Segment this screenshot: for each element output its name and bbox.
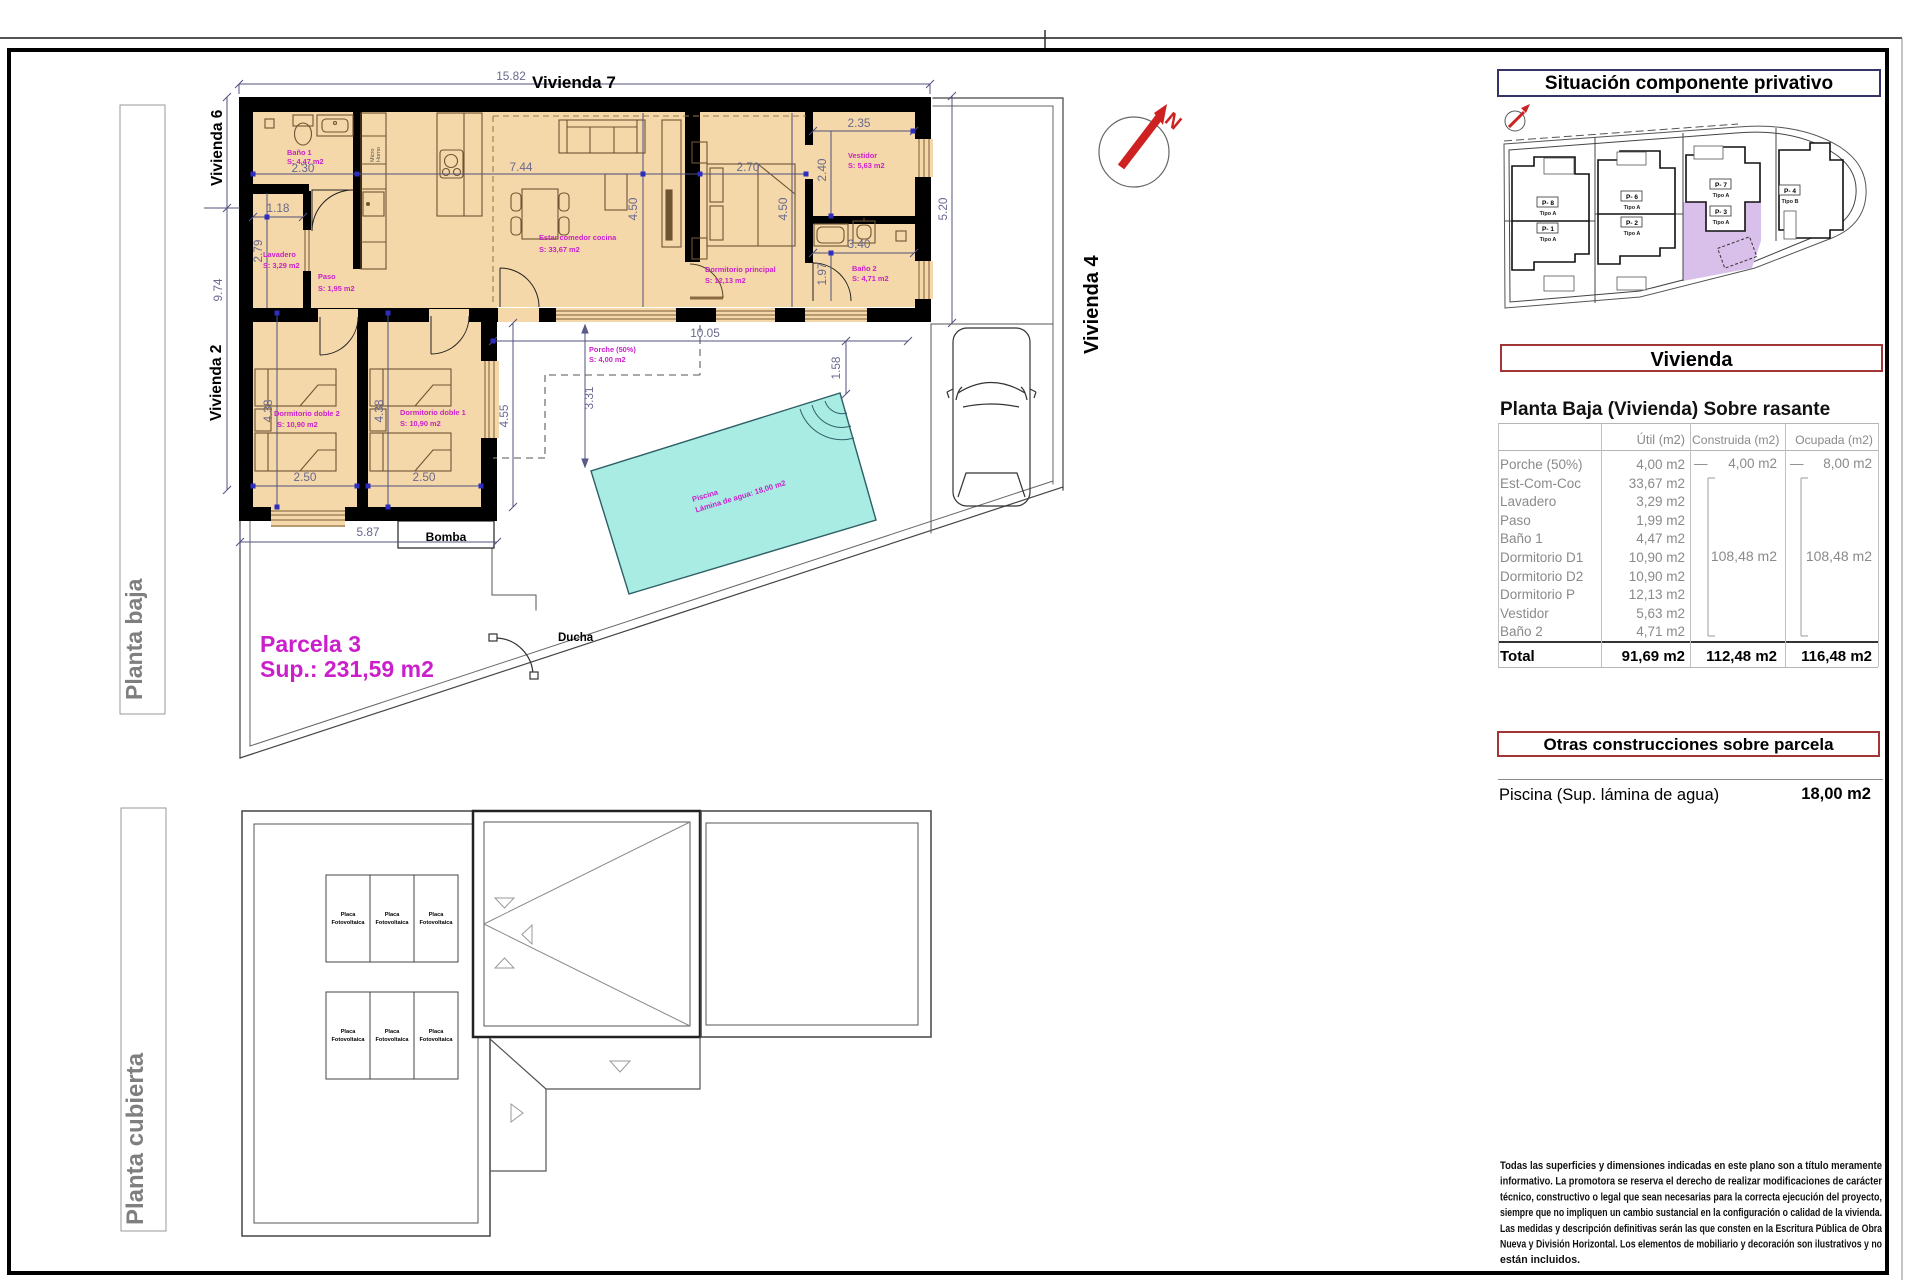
svg-text:Fotovoltaica: Fotovoltaica [332,920,366,926]
svg-text:3.31: 3.31 [582,387,596,410]
svg-text:siempre que no impliquen un ca: siempre que no impliquen un cambio susta… [1500,1207,1882,1219]
svg-text:Tipo B: Tipo B [1781,199,1798,205]
svg-text:1.58: 1.58 [829,356,843,379]
svg-text:Fotovoltaica: Fotovoltaica [376,1037,410,1043]
svg-text:Vivienda 6: Vivienda 6 [209,109,226,186]
svg-text:Planta cubierta: Planta cubierta [122,1052,149,1225]
svg-text:P- 4: P- 4 [1784,188,1796,195]
svg-text:Las medidas y descripción defi: Las medidas y descripción definitivas se… [1500,1223,1882,1235]
svg-text:Baño 2: Baño 2 [852,264,877,273]
svg-text:4.38: 4.38 [372,399,386,422]
svg-text:P- 6: P- 6 [1626,194,1638,201]
svg-text:10.05: 10.05 [690,326,720,340]
svg-text:Planta baja: Planta baja [121,578,147,700]
svg-text:Fotovoltaica: Fotovoltaica [332,1037,366,1043]
svg-text:informativo. La promotora se r: informativo. La promotora se reserva el … [1500,1176,1882,1188]
svg-text:Tipo A: Tipo A [1713,193,1730,199]
svg-text:Placa: Placa [385,1029,401,1035]
svg-text:Tipo A: Tipo A [1540,211,1557,217]
svg-text:S: 5,63 m2: S: 5,63 m2 [848,161,885,170]
svg-text:P- 8: P- 8 [1542,200,1554,207]
svg-text:2.40: 2.40 [815,158,829,181]
svg-text:Sup.: 231,59 m2: Sup.: 231,59 m2 [260,656,434,682]
svg-text:Placa: Placa [341,1029,357,1035]
svg-text:4.50: 4.50 [776,197,790,220]
svg-text:2.50: 2.50 [294,470,317,484]
svg-text:2.50: 2.50 [413,470,436,484]
svg-text:Tipo A: Tipo A [1713,220,1730,226]
svg-text:S: 3,29 m2: S: 3,29 m2 [263,261,300,270]
svg-text:Paso: Paso [318,272,336,281]
svg-text:Fotovoltaica: Fotovoltaica [420,920,454,926]
svg-text:Fotovoltaica: Fotovoltaica [376,920,410,926]
svg-text:Vivienda 7: Vivienda 7 [532,73,616,92]
svg-text:S: 4,00 m2: S: 4,00 m2 [589,355,626,364]
svg-text:Placa: Placa [385,912,401,918]
svg-text:Tipo A: Tipo A [1540,237,1557,243]
svg-text:Dormitorio doble 2: Dormitorio doble 2 [274,409,340,418]
svg-text:Vivienda 2: Vivienda 2 [208,345,225,421]
svg-text:Horno: Horno [376,147,382,162]
svg-text:P- 7: P- 7 [1715,182,1727,189]
svg-text:2.70: 2.70 [737,160,760,174]
svg-text:S: 1,95 m2: S: 1,95 m2 [318,284,355,293]
svg-text:5.87: 5.87 [357,525,380,539]
svg-text:4.38: 4.38 [261,399,275,422]
svg-text:S: 12,13 m2: S: 12,13 m2 [705,276,746,285]
svg-text:9.74: 9.74 [211,278,225,301]
svg-text:Porche (50%): Porche (50%) [589,345,636,354]
svg-text:Tipo A: Tipo A [1624,231,1641,237]
svg-text:están incluidos.: están incluidos. [1500,1254,1580,1266]
svg-text:3.40: 3.40 [848,237,871,251]
svg-text:4.50: 4.50 [626,197,640,220]
svg-text:Ducha: Ducha [558,632,594,644]
svg-text:Placa: Placa [429,1029,445,1035]
svg-text:1.18: 1.18 [267,201,290,215]
svg-text:S: 10,90 m2: S: 10,90 m2 [277,420,318,429]
svg-text:Lavadero: Lavadero [263,250,296,259]
svg-text:técnico, constructivo o legal: técnico, constructivo o legal que sean n… [1500,1191,1882,1203]
svg-text:Placa: Placa [341,912,357,918]
svg-text:P- 3: P- 3 [1715,209,1727,216]
svg-text:Vestidor: Vestidor [848,151,877,160]
svg-text:Todas las superficies y dimens: Todas las superficies y dimensiones indi… [1500,1160,1882,1172]
svg-text:Nueva y División Horizontal. L: Nueva y División Horizontal. Los element… [1500,1239,1882,1251]
svg-text:15.82: 15.82 [496,69,526,83]
svg-text:Dormitorio principal: Dormitorio principal [705,265,776,274]
svg-text:Fotovoltaica: Fotovoltaica [420,1037,454,1043]
svg-text:Dormitorio doble 1: Dormitorio doble 1 [400,408,466,417]
svg-text:S: 4,47 m2: S: 4,47 m2 [287,157,324,166]
svg-text:Tipo A: Tipo A [1624,205,1641,211]
svg-text:P- 2: P- 2 [1626,220,1638,227]
svg-text:S: 33,67 m2: S: 33,67 m2 [539,245,580,254]
svg-text:Vivienda 4: Vivienda 4 [1081,255,1103,354]
svg-text:Placa: Placa [429,912,445,918]
svg-text:1.97: 1.97 [815,263,829,286]
svg-text:Parcela 3: Parcela 3 [260,631,361,657]
svg-text:7.44: 7.44 [510,160,533,174]
svg-text:Baño 1: Baño 1 [287,148,312,157]
svg-text:S: 10,90 m2: S: 10,90 m2 [400,419,441,428]
svg-text:S: 4,71 m2: S: 4,71 m2 [852,274,889,283]
svg-text:4.55: 4.55 [497,404,511,427]
svg-text:5.20: 5.20 [936,197,950,220]
svg-text:2.35: 2.35 [848,116,871,130]
svg-text:P- 1: P- 1 [1542,226,1554,233]
svg-text:Estar comedor cocina: Estar comedor cocina [539,233,617,242]
svg-text:Situación componente privativo: Situación componente privativo [1545,73,1833,94]
